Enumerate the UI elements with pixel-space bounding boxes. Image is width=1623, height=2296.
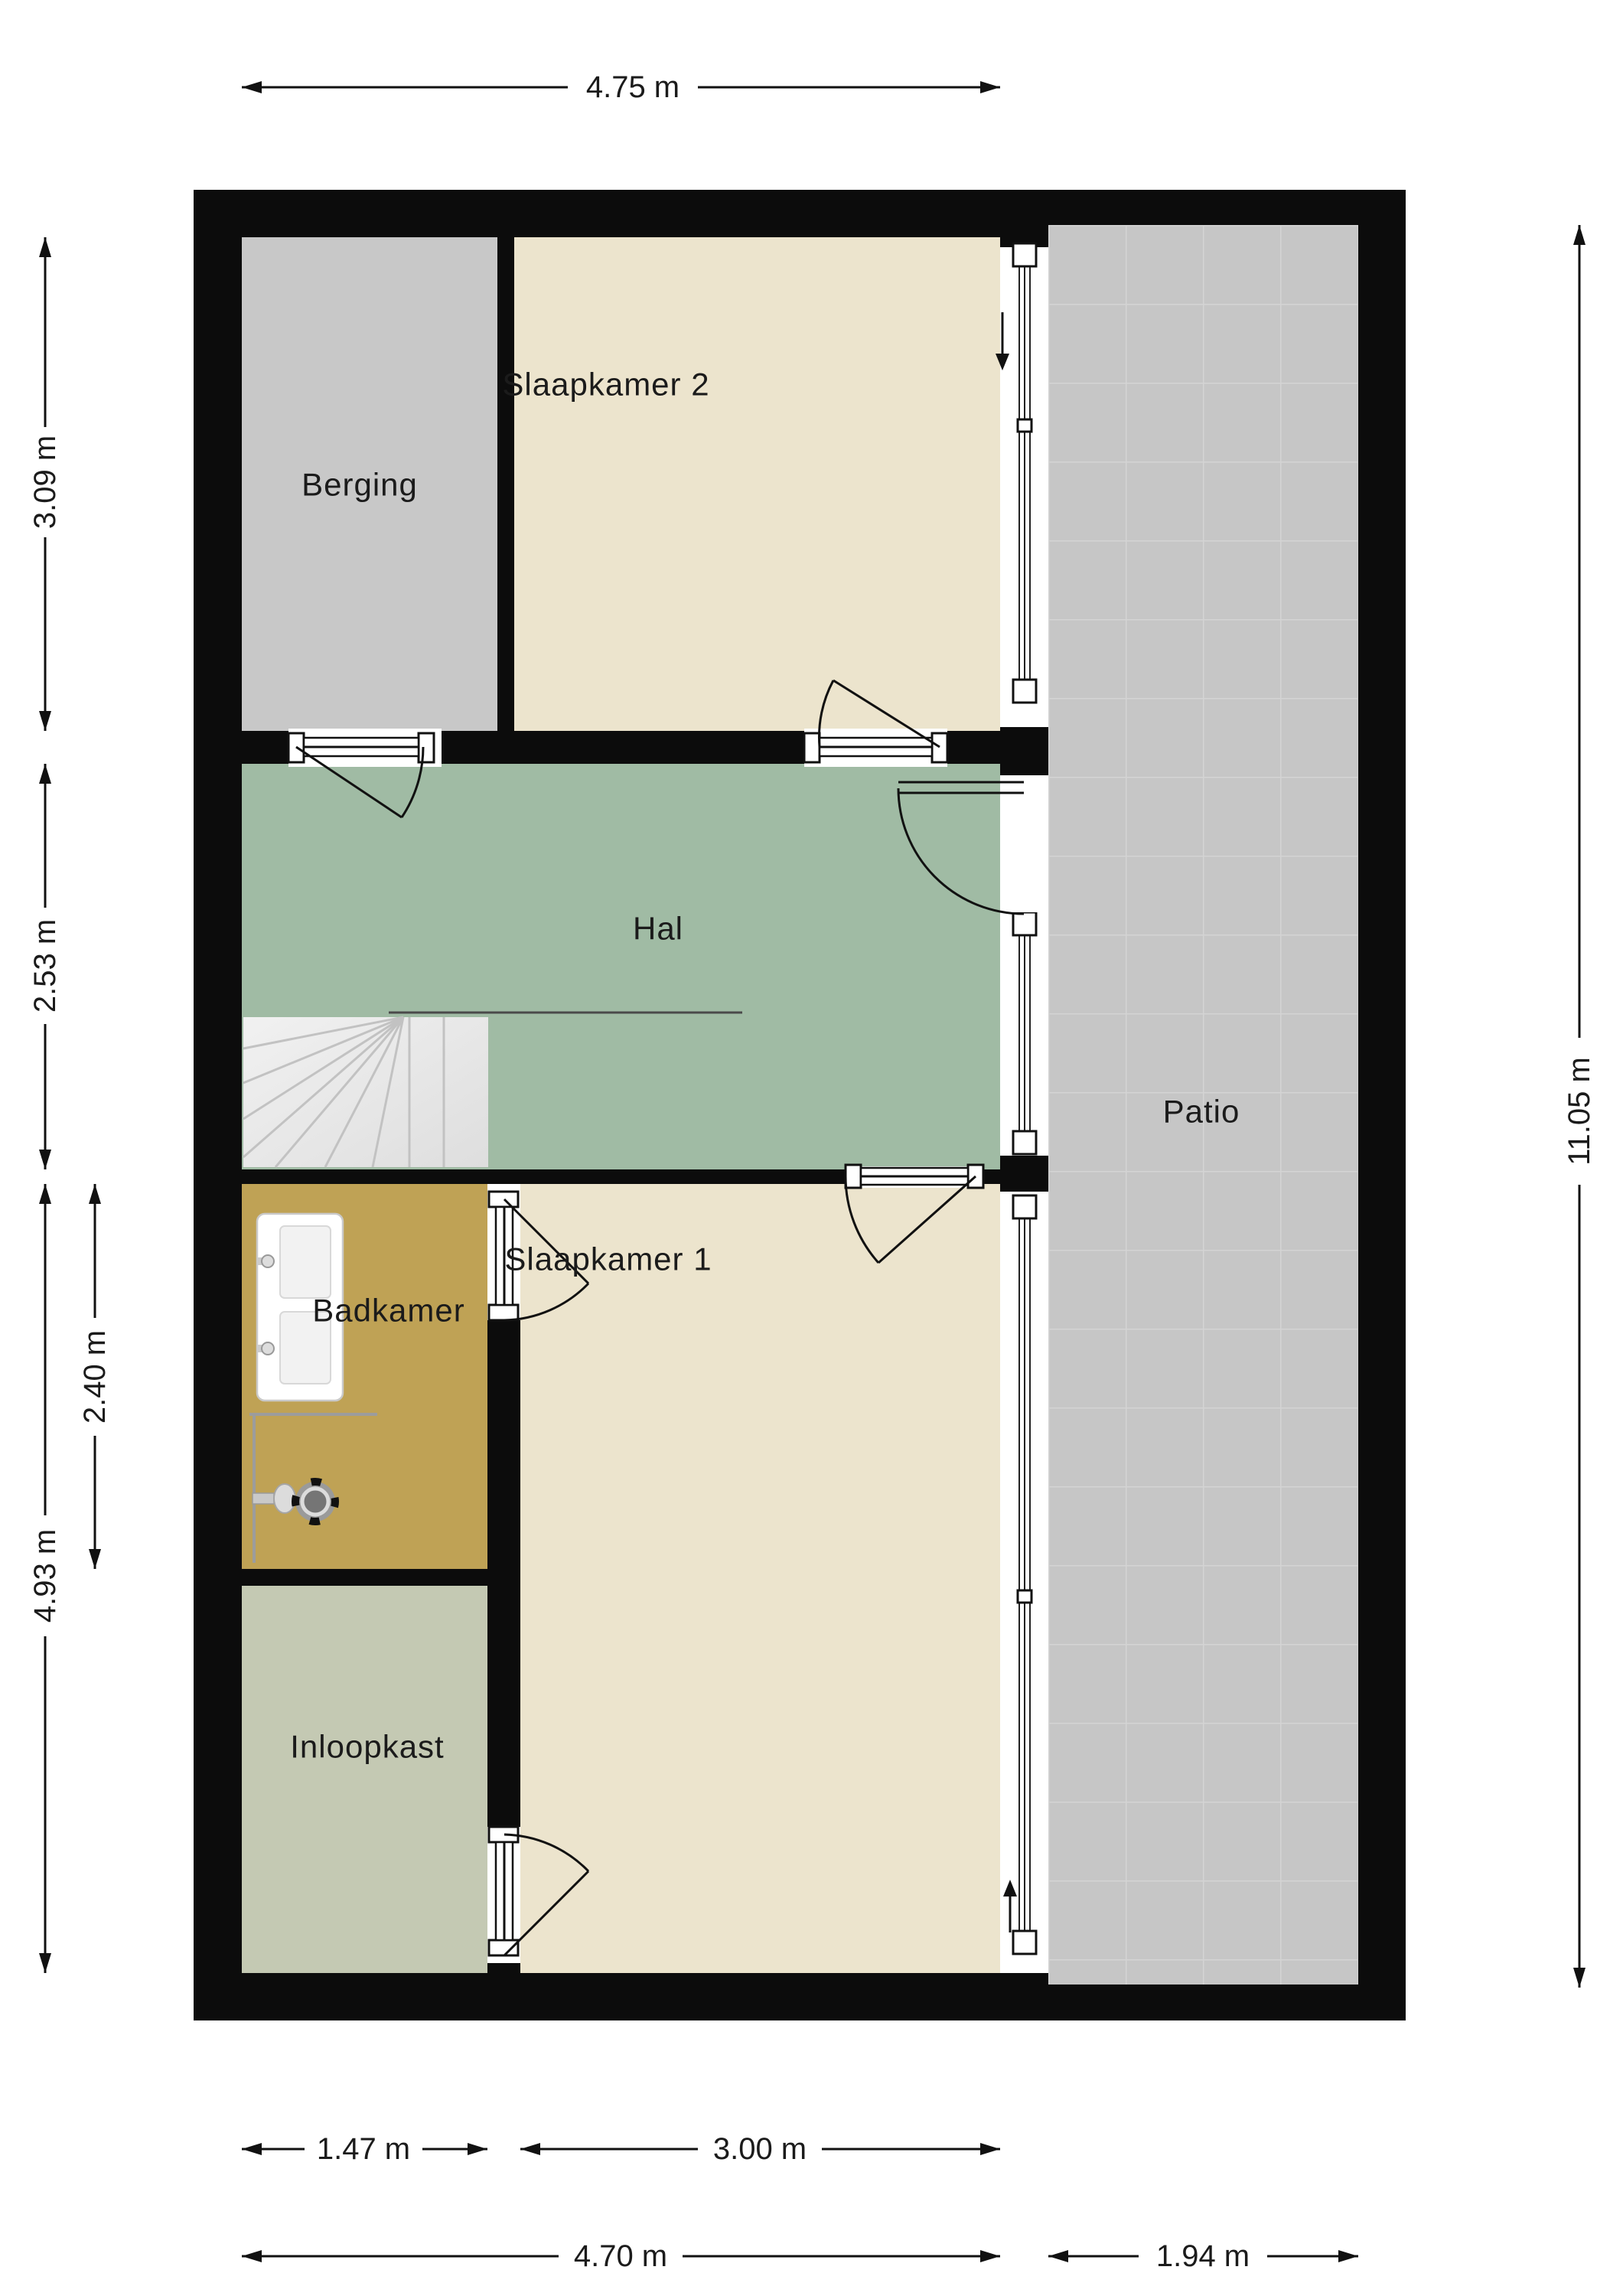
dimension-label: 2.53 m	[28, 919, 62, 1013]
room-label-slaapkamer1: Slaapkamer 1	[504, 1241, 712, 1277]
stairs-base	[243, 1017, 488, 1167]
faucet-icon	[262, 1342, 274, 1355]
dimension-label: 3.09 m	[28, 435, 62, 529]
room-label-badkamer: Badkamer	[312, 1293, 464, 1329]
room-inloopkast	[242, 1586, 487, 1973]
room-label-slaapkamer2: Slaapkamer 2	[502, 367, 709, 403]
dimension-inloopkast-width: 1.47 m	[242, 2132, 487, 2166]
dimension-badkamer-height: 2.40 m	[78, 1184, 112, 1569]
wall-slaapkamer2-hal-right	[947, 731, 1000, 764]
room-label-patio: Patio	[1163, 1094, 1240, 1130]
faucet-icon	[262, 1255, 274, 1267]
window-post	[1013, 1931, 1036, 1954]
room-slaapkamer-2	[514, 237, 1000, 731]
dimension-label: 3.00 m	[713, 2132, 807, 2166]
dimension-total-height: 11.05 m	[1563, 225, 1596, 1988]
window-pillar-low	[1000, 1156, 1048, 1192]
dimension-label: 1.47 m	[317, 2132, 410, 2166]
window-post	[1013, 1195, 1036, 1218]
wall-berging-hal-mid	[434, 731, 804, 764]
outer-wall-left	[194, 190, 242, 2020]
dimension-label: 11.05 m	[1563, 1057, 1596, 1166]
outer-wall-top	[194, 190, 1048, 237]
window-post	[1013, 243, 1036, 266]
wall-berging-slaapkamer2	[497, 237, 514, 731]
window-pillar-top	[1000, 190, 1048, 247]
window-joint	[1018, 1590, 1031, 1603]
dimension-label: 4.75 m	[586, 70, 680, 104]
wall-hal-south-right	[983, 1169, 1000, 1184]
room-label-inloopkast: Inloopkast	[290, 1729, 444, 1765]
dimension-label: 4.93 m	[28, 1529, 62, 1623]
outer-wall-bottom	[194, 1973, 1048, 2020]
sink-basin	[280, 1226, 331, 1298]
outer-wall-top-patio	[1000, 190, 1406, 225]
dimension-label: 2.40 m	[78, 1330, 112, 1424]
dimension-berging-height: 3.09 m	[28, 237, 62, 731]
dimension-slaapkamer1-width: 3.00 m	[520, 2132, 1000, 2166]
window-post	[1013, 1131, 1036, 1154]
outer-wall-right	[1358, 190, 1406, 2020]
shower-head-icon	[253, 1493, 274, 1504]
wall-berging-hal-left	[242, 731, 288, 764]
dimension-main-width: 4.70 m	[242, 2239, 1000, 2273]
wall-inloopkast-stub	[487, 1963, 520, 1973]
room-label-hal: Hal	[633, 911, 683, 947]
wall-badkamer-inloopkast	[242, 1569, 487, 1586]
floor-plan-page: Berging Slaapkamer 2 Hal Badkamer Slaapk…	[0, 0, 1623, 2296]
dimension-label: 1.94 m	[1156, 2239, 1250, 2273]
wall-badkamer-slaapkamer1	[487, 1320, 520, 1827]
wall-hal-south	[242, 1169, 846, 1184]
room-label-berging: Berging	[301, 467, 418, 503]
shower-drain-icon	[295, 1482, 335, 1521]
floor-plan: Berging Slaapkamer 2 Hal Badkamer Slaapk…	[0, 0, 1623, 2296]
outer-wall-bottom-patio	[1048, 1985, 1406, 2020]
dimension-patio-width: 1.94 m	[1048, 2239, 1358, 2273]
dimension-lower-left-height: 4.93 m	[28, 1184, 62, 1973]
window-post	[1013, 680, 1036, 703]
dimension-hal-height: 2.53 m	[28, 764, 62, 1169]
dimension-top-width: 4.75 m	[242, 70, 1000, 104]
window-post	[1013, 912, 1036, 935]
room-slaapkamer-1	[520, 1184, 1000, 1973]
window-joint	[1018, 419, 1031, 432]
dimension-label: 4.70 m	[574, 2239, 667, 2273]
window-pillar-mid	[1000, 727, 1048, 775]
